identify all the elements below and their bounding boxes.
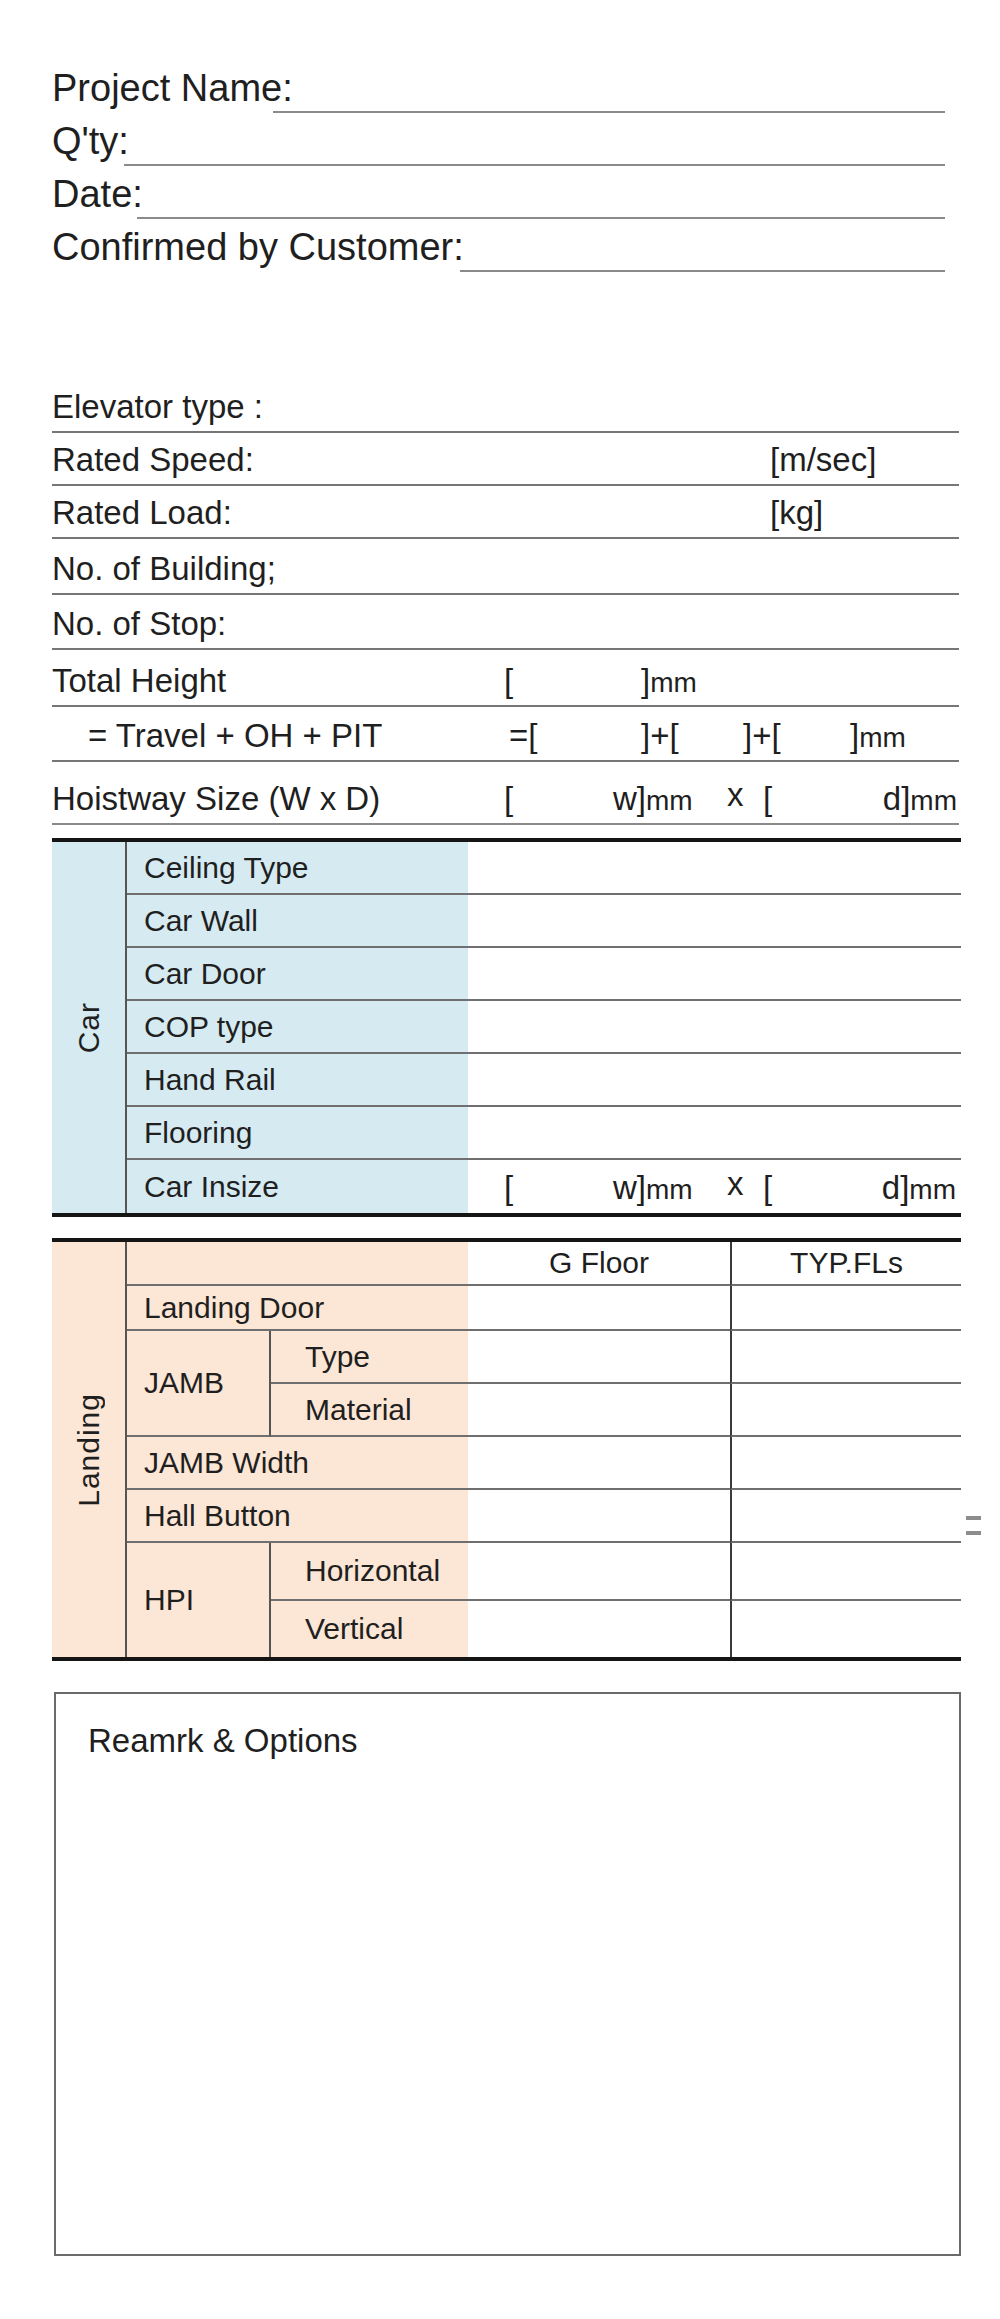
hoistway-size-label: Hoistway Size (W x D) bbox=[52, 782, 380, 815]
jamb-material-label: Material bbox=[271, 1384, 468, 1437]
hall-button-g-floor-value bbox=[468, 1490, 730, 1543]
jamb-material-typ-fls-value bbox=[730, 1384, 961, 1437]
times-x: x bbox=[727, 1167, 744, 1200]
car-row-label: Flooring bbox=[127, 1107, 468, 1160]
car-group-label: Car bbox=[74, 1002, 104, 1053]
hall-button-label: Hall Button bbox=[127, 1490, 468, 1543]
hpi-vertical-g-floor-value bbox=[468, 1601, 730, 1657]
car-group-cell: Car bbox=[52, 842, 127, 1213]
jamb-type-g-floor-value bbox=[468, 1331, 730, 1384]
form-page: Project Name: Q'ty: Date: Confirmed by C… bbox=[0, 0, 1000, 2319]
hpi-vertical-label: Vertical bbox=[271, 1601, 468, 1657]
rated-load-label: Rated Load: bbox=[52, 496, 232, 529]
qty-line bbox=[124, 164, 945, 166]
car-wall-value bbox=[468, 895, 961, 948]
jamb-type-label: Type bbox=[271, 1331, 468, 1384]
hpi-horizontal-g-floor-value bbox=[468, 1543, 730, 1601]
hpi-vertical-typ-fls-value bbox=[730, 1601, 961, 1657]
cop-type-value bbox=[468, 1001, 961, 1054]
hpi-group-label: HPI bbox=[127, 1543, 271, 1657]
flooring-value bbox=[468, 1107, 961, 1160]
rated-speed-label: Rated Speed: bbox=[52, 443, 254, 476]
car-row-label: Car Insize bbox=[127, 1160, 468, 1213]
spec-row-travel-oh-pit: = Travel + OH + PIT =[ ]+[ ]+[ ]mm bbox=[52, 712, 959, 762]
spec-row-hoistway-size: Hoistway Size (W x D) [ w]mm x [ d]mm bbox=[52, 775, 959, 825]
project-name-label: Project Name: bbox=[52, 67, 293, 111]
bracket-open: [ bbox=[504, 1171, 513, 1204]
car-insize-value: [ w]mm x [ d]mm bbox=[468, 1160, 961, 1213]
confirmed-by-customer-line bbox=[460, 270, 945, 272]
hpi-horizontal-label: Horizontal bbox=[271, 1543, 468, 1601]
spec-row-total-height: Total Height [ ]mm bbox=[52, 657, 959, 707]
bracket-close-mm: ]mm bbox=[850, 719, 906, 752]
bracket-d-mm: d]mm bbox=[883, 782, 957, 815]
landing-door-typ-fls-value bbox=[730, 1286, 961, 1331]
spec-row-rated-speed: Rated Speed: [m/sec] bbox=[52, 436, 959, 486]
bracket-d-mm: d]mm bbox=[882, 1171, 956, 1204]
jamb-width-label: JAMB Width bbox=[127, 1437, 468, 1490]
remarks-box: Reamrk & Options bbox=[54, 1692, 961, 2256]
hall-button-typ-fls-value bbox=[730, 1490, 961, 1543]
bracket-close-mm: ]mm bbox=[641, 664, 697, 697]
jamb-type-typ-fls-value bbox=[730, 1331, 961, 1384]
landing-header-blank bbox=[127, 1242, 468, 1286]
bracket-plus: ]+[ bbox=[641, 719, 679, 752]
bracket-open: [ bbox=[504, 782, 513, 815]
date-label: Date: bbox=[52, 173, 143, 217]
date-line bbox=[137, 217, 945, 219]
margin-dash bbox=[966, 1531, 981, 1535]
jamb-width-g-floor-value bbox=[468, 1437, 730, 1490]
car-row-label: Car Wall bbox=[127, 895, 468, 948]
bracket-eq-open: =[ bbox=[509, 719, 537, 752]
bracket-open: [ bbox=[504, 664, 513, 697]
jamb-group-label: JAMB bbox=[127, 1331, 271, 1437]
qty-label: Q'ty: bbox=[52, 120, 129, 164]
confirmed-by-customer-label: Confirmed by Customer: bbox=[52, 226, 464, 270]
spec-row-no-of-stop: No. of Stop: bbox=[52, 600, 959, 650]
remarks-title: Reamrk & Options bbox=[88, 1722, 358, 1760]
bracket-open: [ bbox=[763, 782, 772, 815]
spec-row-no-of-building: No. of Building; bbox=[52, 545, 959, 595]
landing-table: Landing G Floor TYP.FLs Landing Door JAM… bbox=[52, 1238, 961, 1661]
landing-group-label: Landing bbox=[74, 1393, 104, 1507]
margin-dash bbox=[966, 1516, 981, 1520]
hand-rail-value bbox=[468, 1054, 961, 1107]
car-row-label: Car Door bbox=[127, 948, 468, 1001]
rated-speed-unit: [m/sec] bbox=[770, 443, 876, 476]
bracket-open: [ bbox=[763, 1171, 772, 1204]
car-door-value bbox=[468, 948, 961, 1001]
car-ceiling-type-value bbox=[468, 842, 961, 895]
times-x: x bbox=[727, 778, 744, 811]
col-header-typ-fls: TYP.FLs bbox=[730, 1242, 961, 1286]
total-height-label: Total Height bbox=[52, 664, 226, 697]
car-table: Car Ceiling Type Car Wall Car Door COP t… bbox=[52, 838, 961, 1217]
bracket-w-mm: w]mm bbox=[613, 1171, 693, 1204]
no-of-stop-label: No. of Stop: bbox=[52, 607, 226, 640]
travel-oh-pit-label: = Travel + OH + PIT bbox=[88, 719, 382, 752]
no-of-building-label: No. of Building; bbox=[52, 552, 276, 585]
bracket-plus: ]+[ bbox=[743, 719, 781, 752]
col-header-g-floor: G Floor bbox=[468, 1242, 730, 1286]
landing-door-g-floor-value bbox=[468, 1286, 730, 1331]
project-name-line bbox=[273, 111, 945, 113]
spec-row-elevator-type: Elevator type : bbox=[52, 383, 959, 433]
bracket-w-mm: w]mm bbox=[613, 782, 693, 815]
elevator-type-label: Elevator type : bbox=[52, 390, 263, 423]
car-row-label: Ceiling Type bbox=[127, 842, 468, 895]
rated-load-unit: [kg] bbox=[770, 496, 823, 529]
landing-row-label: Landing Door bbox=[127, 1286, 468, 1331]
hpi-horizontal-typ-fls-value bbox=[730, 1543, 961, 1601]
car-row-label: COP type bbox=[127, 1001, 468, 1054]
landing-group-cell: Landing bbox=[52, 1242, 127, 1657]
car-row-label: Hand Rail bbox=[127, 1054, 468, 1107]
jamb-material-g-floor-value bbox=[468, 1384, 730, 1437]
spec-row-rated-load: Rated Load: [kg] bbox=[52, 489, 959, 539]
jamb-width-typ-fls-value bbox=[730, 1437, 961, 1490]
